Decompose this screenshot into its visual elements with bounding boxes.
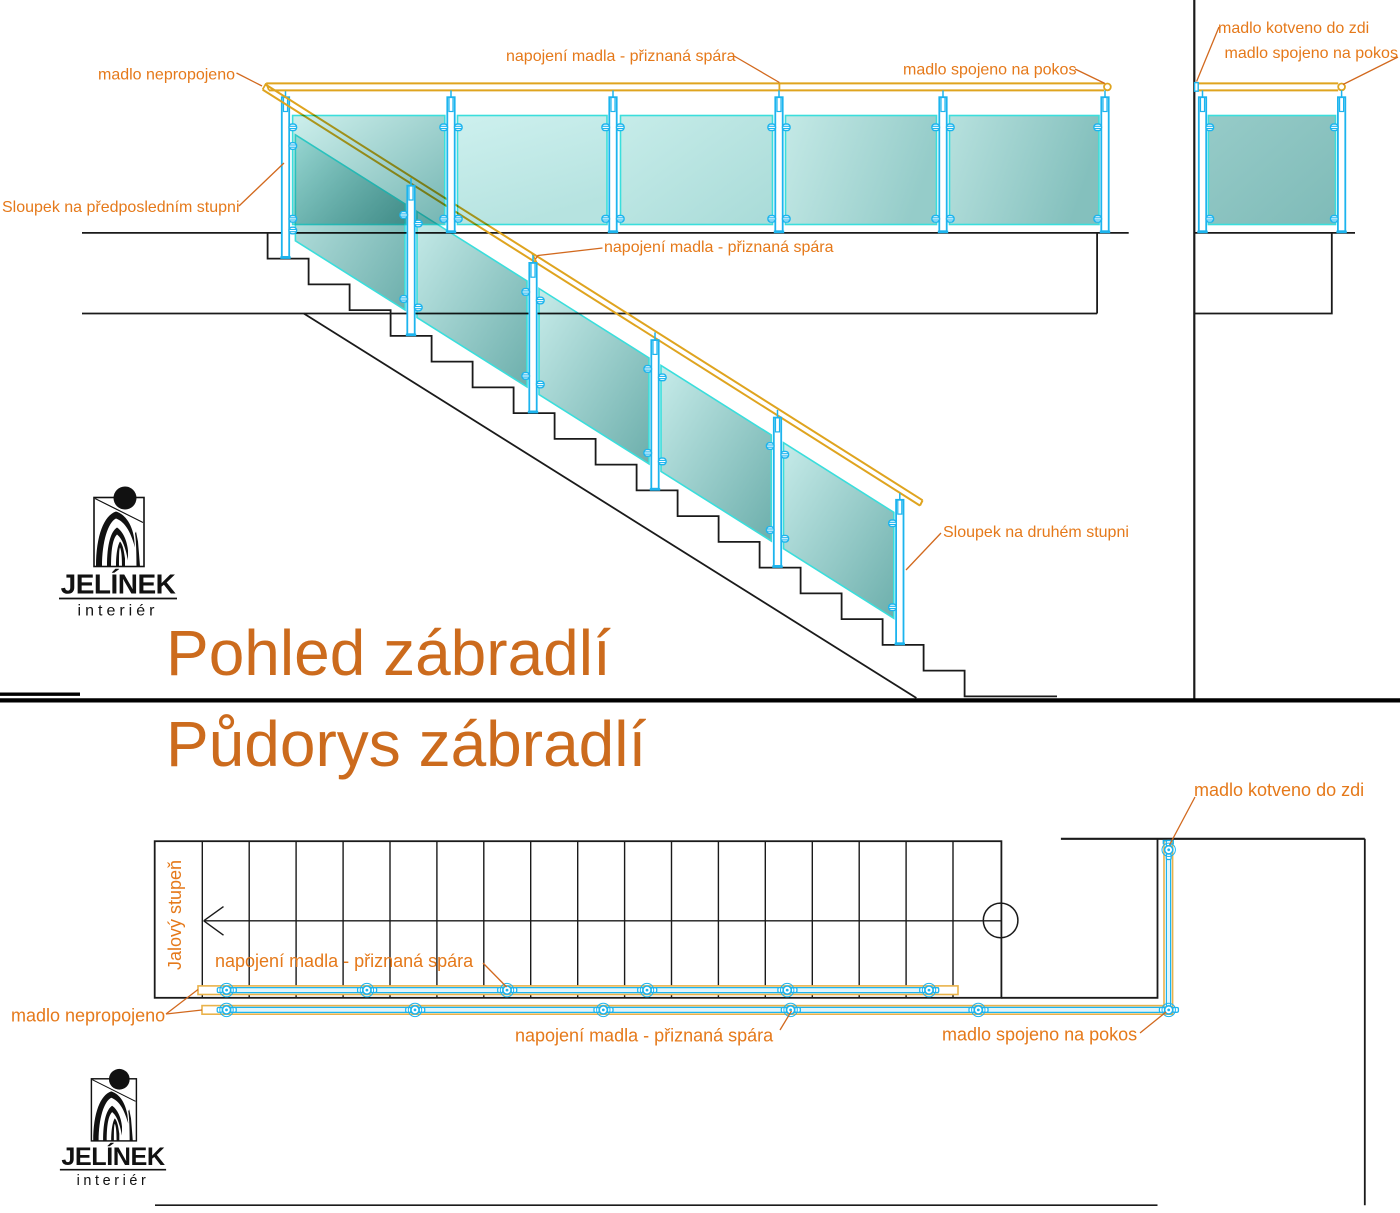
svg-text:interiér: interiér (78, 603, 159, 620)
svg-text:JELÍNEK: JELÍNEK (61, 569, 176, 600)
svg-text:napojení madla - přiznaná spár: napojení madla - přiznaná spára (215, 951, 474, 971)
svg-text:madlo spojeno na pokos: madlo spojeno na pokos (942, 1025, 1137, 1045)
svg-text:JELÍNEK: JELÍNEK (61, 1142, 164, 1171)
svg-text:madlo spojeno na pokos: madlo spojeno na pokos (903, 62, 1076, 79)
svg-text:madlo nepropojeno: madlo nepropojeno (98, 67, 235, 84)
svg-text:Pohled zábradlí: Pohled zábradlí (166, 617, 611, 689)
svg-text:napojení madla - přiznaná spár: napojení madla - přiznaná spára (506, 48, 736, 65)
svg-text:madlo spojeno na pokos: madlo spojeno na pokos (1225, 45, 1398, 62)
svg-text:madlo kotveno do zdi: madlo kotveno do zdi (1218, 20, 1369, 37)
svg-text:madlo nepropojeno: madlo nepropojeno (11, 1006, 165, 1026)
svg-text:madlo kotveno do zdi: madlo kotveno do zdi (1194, 780, 1364, 800)
svg-text:Půdorys zábradlí: Půdorys zábradlí (166, 708, 646, 780)
svg-text:Sloupek na předposledním stupn: Sloupek na předposledním stupni (2, 199, 240, 216)
svg-text:napojení madla - přiznaná spár: napojení madla - přiznaná spára (604, 239, 834, 256)
svg-text:Sloupek na druhém stupni: Sloupek na druhém stupni (943, 524, 1129, 541)
svg-text:Jalový stupeň: Jalový stupeň (165, 860, 185, 970)
svg-text:napojení madla - přiznaná spár: napojení madla - přiznaná spára (515, 1026, 774, 1046)
svg-text:interiér: interiér (77, 1173, 150, 1189)
